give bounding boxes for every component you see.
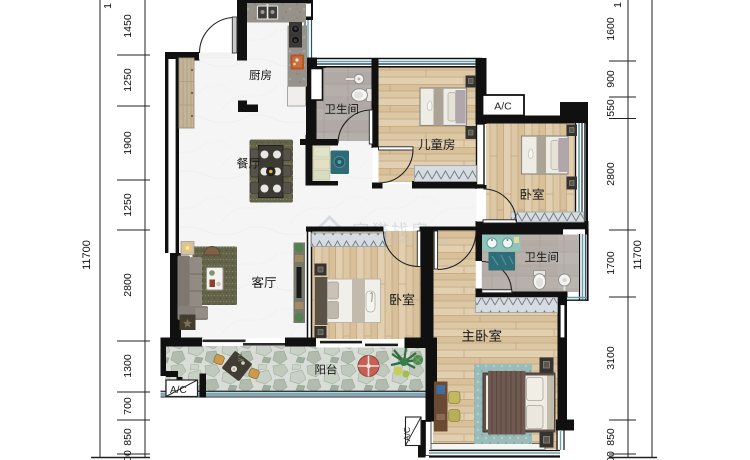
svg-text:3100: 3100 bbox=[605, 346, 617, 370]
svg-text:1900: 1900 bbox=[122, 131, 134, 155]
svg-text:1700: 1700 bbox=[605, 251, 617, 275]
svg-text:1300: 1300 bbox=[122, 354, 134, 378]
svg-text:1: 1 bbox=[612, 2, 624, 8]
svg-text:700: 700 bbox=[122, 397, 134, 415]
svg-text:1250: 1250 bbox=[122, 193, 134, 217]
svg-text:1: 1 bbox=[102, 3, 114, 9]
svg-text:00: 00 bbox=[122, 450, 134, 460]
svg-text:00: 00 bbox=[605, 451, 617, 460]
svg-text:11700: 11700 bbox=[81, 240, 93, 270]
svg-text:1450: 1450 bbox=[122, 14, 134, 38]
svg-text:A/C: A/C bbox=[402, 427, 412, 441]
svg-text:2800: 2800 bbox=[122, 273, 134, 297]
svg-text:A/C: A/C bbox=[494, 101, 512, 113]
svg-text:11700: 11700 bbox=[632, 240, 644, 270]
svg-text:850: 850 bbox=[122, 428, 134, 446]
svg-text:850: 850 bbox=[605, 428, 617, 446]
svg-text:2800: 2800 bbox=[605, 162, 617, 186]
svg-text:550: 550 bbox=[605, 99, 617, 117]
svg-text:1600: 1600 bbox=[605, 17, 617, 41]
svg-text:1250: 1250 bbox=[122, 68, 134, 92]
svg-text:900: 900 bbox=[605, 70, 617, 88]
